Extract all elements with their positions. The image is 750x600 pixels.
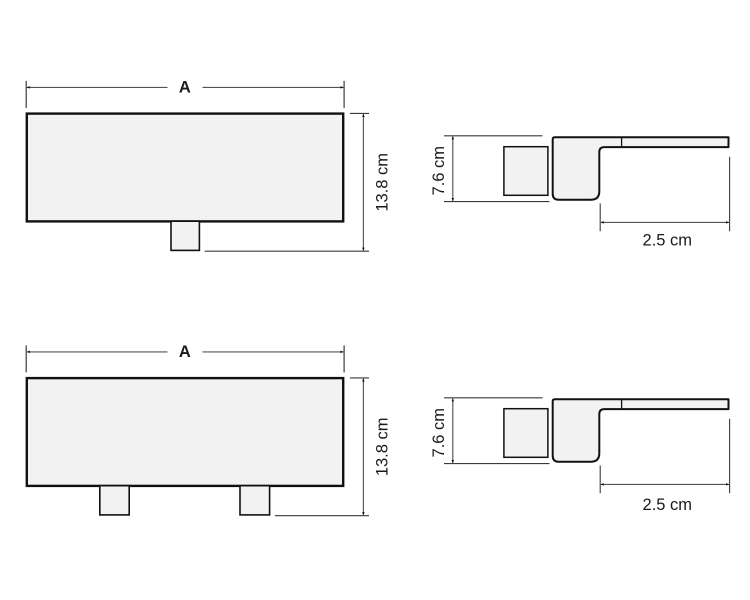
- svg-text:2.5 cm: 2.5 cm: [643, 496, 693, 514]
- svg-text:A: A: [179, 78, 191, 96]
- svg-text:13.8 cm: 13.8 cm: [374, 153, 392, 212]
- svg-text:7.6 cm: 7.6 cm: [430, 146, 448, 196]
- svg-text:A: A: [179, 343, 191, 361]
- svg-text:7.6 cm: 7.6 cm: [430, 408, 448, 458]
- svg-text:13.8 cm: 13.8 cm: [374, 417, 392, 476]
- svg-text:2.5 cm: 2.5 cm: [643, 232, 693, 250]
